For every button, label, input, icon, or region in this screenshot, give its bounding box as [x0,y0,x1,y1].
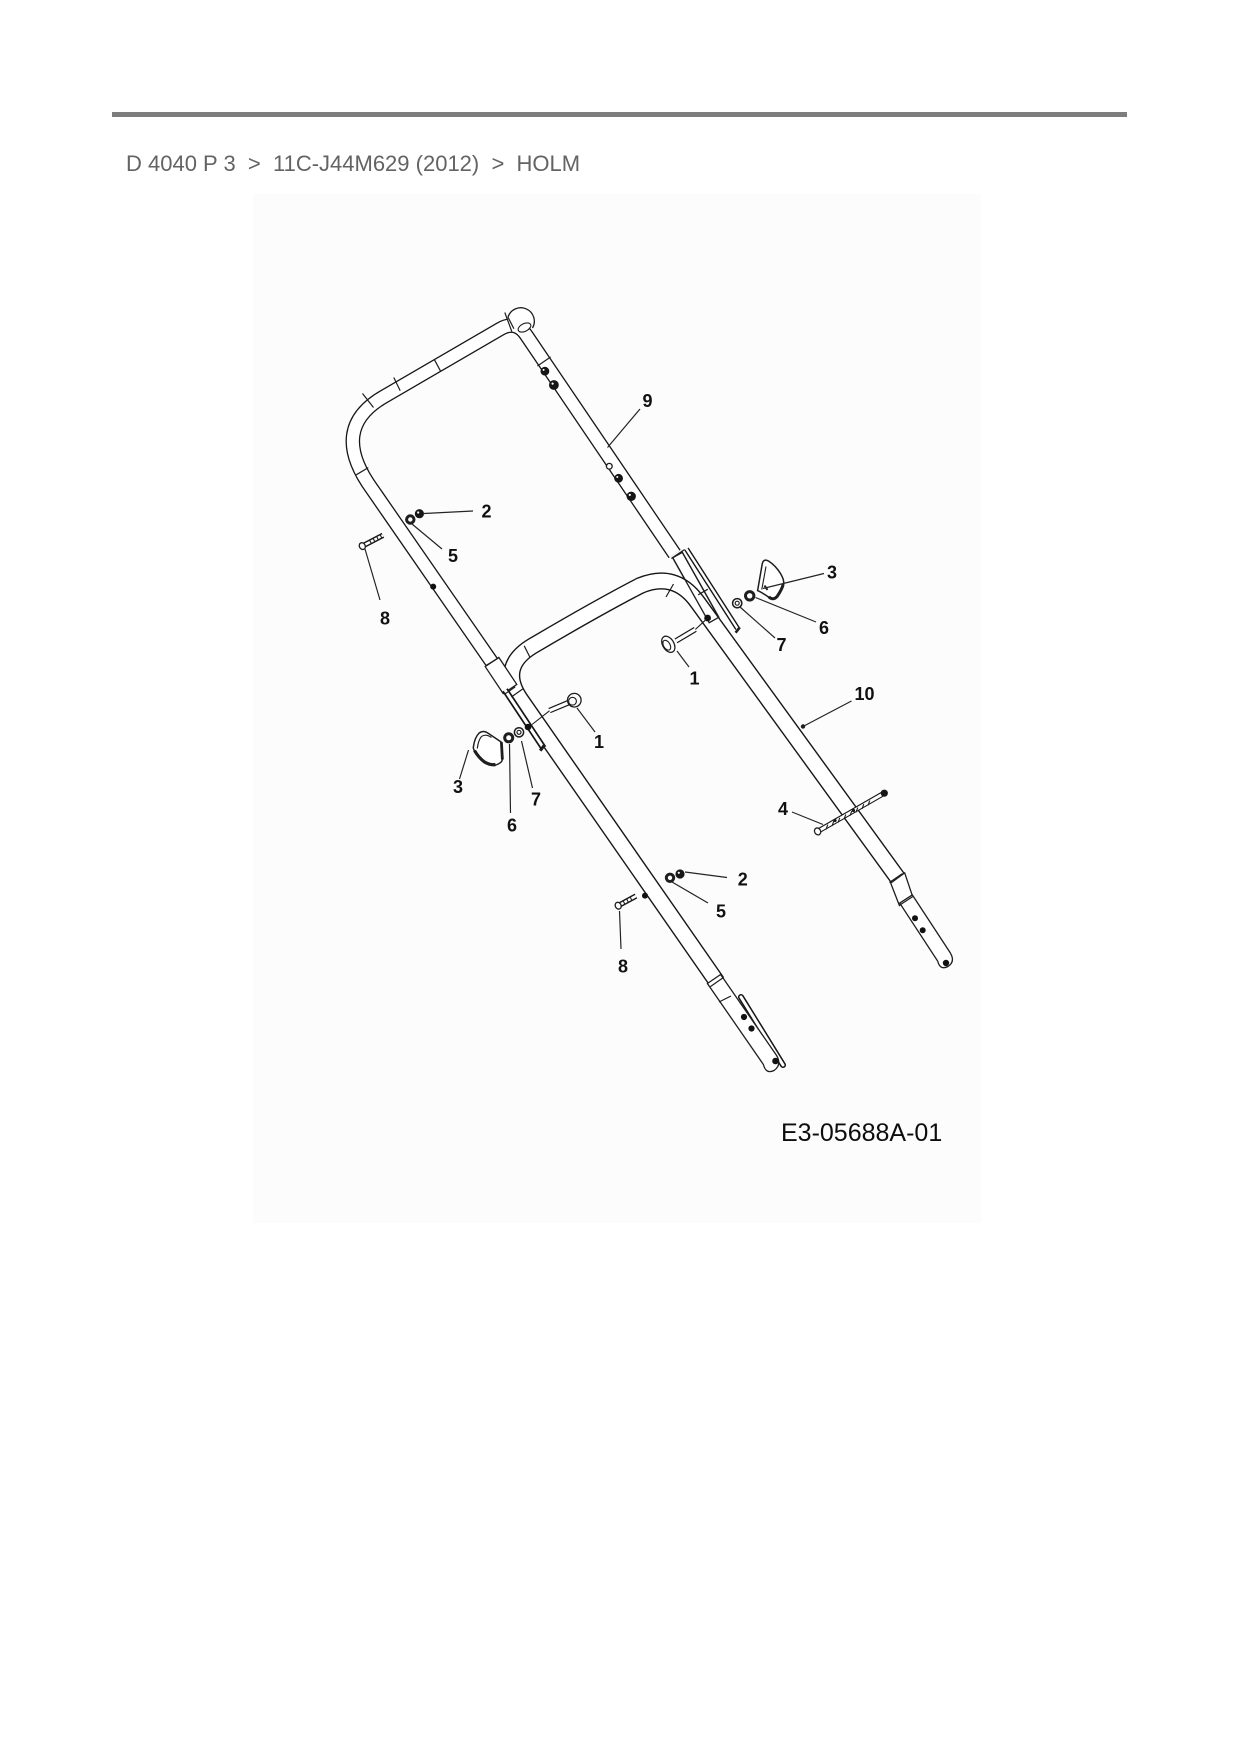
svg-text:2: 2 [481,502,491,522]
svg-text:9: 9 [642,391,652,411]
svg-text:8: 8 [380,609,390,629]
svg-text:2: 2 [738,870,748,890]
svg-text:1: 1 [689,669,699,689]
svg-text:E3-05688A-01: E3-05688A-01 [781,1119,942,1147]
svg-text:7: 7 [776,635,786,655]
svg-text:3: 3 [827,563,837,583]
svg-text:1: 1 [594,732,604,752]
svg-text:8: 8 [618,957,628,977]
svg-text:6: 6 [819,618,829,638]
svg-text:5: 5 [716,902,726,922]
svg-text:5: 5 [448,546,458,566]
svg-text:3: 3 [453,777,463,797]
svg-text:4: 4 [778,799,788,819]
svg-text:6: 6 [507,816,517,836]
svg-text:7: 7 [531,790,541,810]
svg-text:10: 10 [854,684,874,704]
